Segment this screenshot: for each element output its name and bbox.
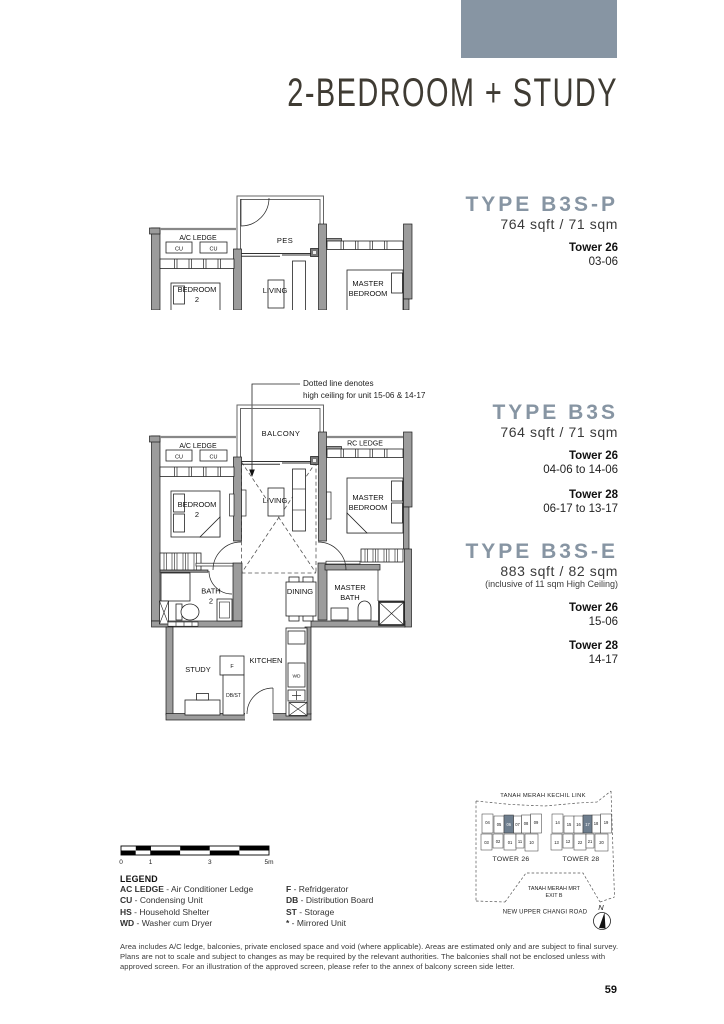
svg-text:08: 08 (524, 821, 529, 826)
svg-text:A/C LEDGE: A/C LEDGE (179, 443, 217, 450)
svg-text:TANAH MERAH KECHIL LINK: TANAH MERAH KECHIL LINK (500, 793, 586, 799)
svg-text:BEDROOM: BEDROOM (349, 289, 388, 298)
svg-text:LIVING: LIVING (263, 496, 288, 505)
svg-text:PES: PES (277, 236, 293, 245)
svg-text:WD: WD (293, 674, 302, 680)
svg-text:CU: CU (175, 455, 183, 461)
svg-text:03: 03 (484, 840, 489, 845)
svg-text:06: 06 (507, 822, 512, 827)
svg-text:MASTER: MASTER (334, 583, 366, 592)
svg-text:RC LEDGE: RC LEDGE (347, 441, 383, 448)
svg-text:20: 20 (599, 840, 604, 845)
svg-text:16: 16 (576, 822, 581, 827)
svg-text:17: 17 (585, 822, 590, 827)
svg-text:LIVING: LIVING (263, 286, 288, 295)
svg-text:Dotted line denotes: Dotted line denotes (303, 379, 374, 388)
svg-text:04: 04 (485, 820, 490, 825)
svg-text:19: 19 (604, 820, 609, 825)
svg-text:0: 0 (119, 859, 123, 866)
svg-text:BEDROOM: BEDROOM (178, 500, 217, 509)
svg-text:STUDY: STUDY (185, 665, 210, 674)
svg-text:MASTER: MASTER (352, 279, 384, 288)
svg-text:TOWER 28: TOWER 28 (562, 856, 599, 863)
svg-text:BALCONY: BALCONY (262, 429, 301, 438)
svg-text:BEDROOM: BEDROOM (349, 503, 388, 512)
svg-text:CU: CU (210, 455, 218, 461)
svg-text:DINING: DINING (287, 587, 313, 596)
svg-text:TOWER 26: TOWER 26 (492, 856, 529, 863)
svg-text:10: 10 (529, 840, 534, 845)
svg-text:N: N (598, 903, 604, 912)
svg-text:12: 12 (566, 839, 571, 844)
svg-text:09: 09 (534, 820, 539, 825)
svg-text:2: 2 (195, 510, 199, 519)
svg-text:BEDROOM: BEDROOM (178, 285, 217, 294)
svg-text:CU: CU (175, 247, 183, 253)
svg-text:18: 18 (594, 821, 599, 826)
svg-text:MASTER: MASTER (352, 493, 384, 502)
svg-text:14: 14 (555, 820, 560, 825)
svg-text:2: 2 (195, 295, 199, 304)
svg-text:3: 3 (208, 859, 212, 866)
svg-text:22: 22 (578, 840, 583, 845)
svg-text:A/C LEDGE: A/C LEDGE (179, 235, 217, 242)
svg-text:11: 11 (518, 839, 523, 844)
svg-text:NEW UPPER CHANGI ROAD: NEW UPPER CHANGI ROAD (503, 910, 588, 916)
svg-text:BATH: BATH (201, 587, 220, 596)
svg-text:05: 05 (497, 822, 502, 827)
svg-text:EXIT B: EXIT B (546, 893, 563, 899)
svg-text:01: 01 (508, 840, 513, 845)
svg-text:KITCHEN: KITCHEN (250, 656, 283, 665)
svg-text:21: 21 (588, 839, 593, 844)
svg-text:15: 15 (567, 822, 572, 827)
svg-text:5m: 5m (264, 859, 273, 866)
svg-text:2: 2 (209, 597, 213, 606)
svg-text:high ceiling for unit 15-06 &: high ceiling for unit 15-06 & 14-17 (303, 391, 426, 400)
svg-text:CU: CU (210, 247, 218, 253)
svg-text:TANAH MERAH MRT: TANAH MERAH MRT (528, 886, 581, 892)
svg-text:07: 07 (515, 822, 520, 827)
svg-text:DB/ST: DB/ST (226, 693, 241, 699)
svg-text:1: 1 (149, 859, 153, 866)
svg-text:13: 13 (554, 840, 559, 845)
svg-text:02: 02 (496, 839, 501, 844)
svg-text:BATH: BATH (340, 593, 359, 602)
